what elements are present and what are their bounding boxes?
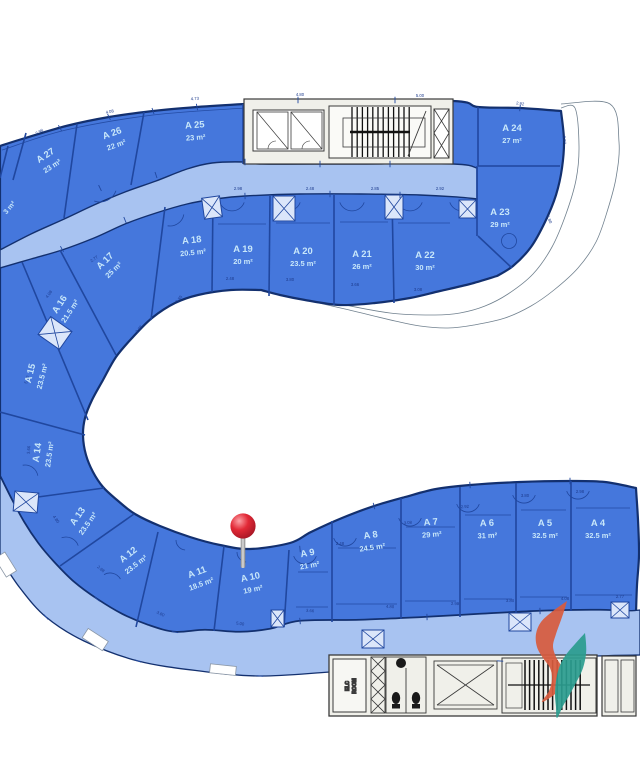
svg-text:A 20: A 20 xyxy=(293,245,312,256)
svg-text:3.87: 3.87 xyxy=(562,136,568,145)
svg-text:2.98: 2.98 xyxy=(234,186,243,191)
svg-text:A 24: A 24 xyxy=(502,122,522,133)
svg-text:3.66: 3.66 xyxy=(306,608,315,614)
svg-text:ELC: ELC xyxy=(345,681,351,691)
svg-text:29 m²: 29 m² xyxy=(422,529,443,540)
svg-text:ROOM: ROOM xyxy=(352,678,358,694)
svg-text:4.73: 4.73 xyxy=(191,96,200,102)
svg-text:2.92: 2.92 xyxy=(461,504,470,510)
svg-text:29 m²: 29 m² xyxy=(490,220,510,229)
svg-text:2.98: 2.98 xyxy=(451,601,460,606)
svg-text:3.80: 3.80 xyxy=(506,598,515,603)
svg-text:23 m²: 23 m² xyxy=(186,132,207,142)
svg-text:2.48: 2.48 xyxy=(306,186,315,191)
svg-text:2.85: 2.85 xyxy=(371,186,380,191)
svg-text:A 5: A 5 xyxy=(538,517,552,528)
svg-text:A 22: A 22 xyxy=(415,249,434,260)
svg-text:26 m²: 26 m² xyxy=(352,262,372,271)
svg-text:4.80: 4.80 xyxy=(296,92,305,97)
svg-text:5.00: 5.00 xyxy=(416,93,425,98)
svg-text:A 25: A 25 xyxy=(185,118,205,130)
svg-text:A 21: A 21 xyxy=(352,248,371,259)
svg-text:3.08: 3.08 xyxy=(404,520,413,526)
svg-text:2.48: 2.48 xyxy=(336,541,345,546)
svg-text:2.92: 2.92 xyxy=(436,186,445,191)
svg-text:4.80: 4.80 xyxy=(386,604,395,609)
svg-text:A 4: A 4 xyxy=(591,517,606,528)
svg-text:3.80: 3.80 xyxy=(521,493,530,498)
svg-text:32.5 m²: 32.5 m² xyxy=(585,531,611,540)
svg-text:3.08: 3.08 xyxy=(414,287,423,292)
svg-text:A 23: A 23 xyxy=(490,206,509,217)
svg-text:3.66: 3.66 xyxy=(351,282,360,287)
svg-text:A 7: A 7 xyxy=(423,515,438,527)
svg-text:20 m²: 20 m² xyxy=(233,257,253,266)
svg-text:3.80: 3.80 xyxy=(286,277,295,282)
svg-text:A 8: A 8 xyxy=(363,528,379,541)
svg-text:A 6: A 6 xyxy=(480,517,495,528)
svg-text:A 19: A 19 xyxy=(233,243,252,254)
svg-text:2.98: 2.98 xyxy=(576,489,585,494)
svg-text:2.48: 2.48 xyxy=(226,276,235,281)
svg-text:31 m²: 31 m² xyxy=(477,531,497,541)
svg-text:2.77: 2.77 xyxy=(616,594,625,599)
svg-text:23.5 m²: 23.5 m² xyxy=(290,259,316,268)
svg-text:30 m²: 30 m² xyxy=(415,263,435,272)
svg-text:32.5 m²: 32.5 m² xyxy=(532,531,558,540)
svg-text:27 m²: 27 m² xyxy=(502,136,522,145)
svg-text:A 18: A 18 xyxy=(181,233,202,246)
svg-text:4.08: 4.08 xyxy=(561,596,570,601)
